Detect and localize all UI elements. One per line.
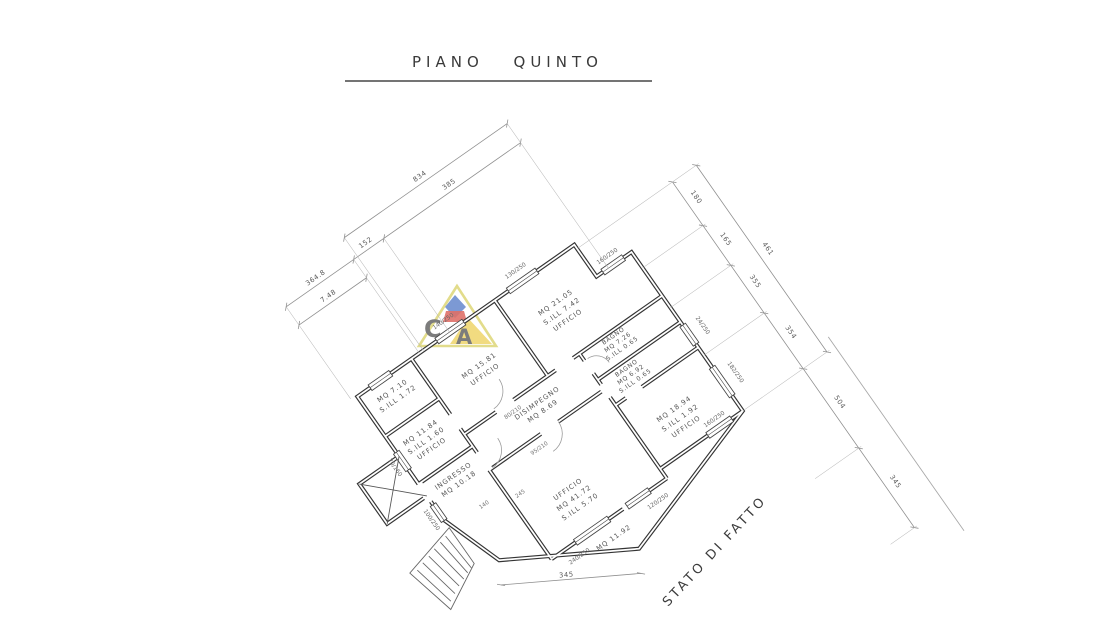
dim-461: 461 — [760, 241, 775, 258]
dim-385: 385 — [441, 177, 458, 192]
room-label-ufficio-grande: UFFICIO MQ 41.72 S.ILL 5.70 — [548, 474, 600, 523]
dim-345-terrace: 345 — [559, 570, 574, 579]
room-label-c-ufficio: MQ 15.81 UFFICIO — [460, 351, 504, 390]
dim-354: 354 — [783, 324, 798, 341]
dim-345: 345 — [888, 473, 903, 490]
dim-7-48: 7.48 — [319, 288, 338, 305]
room-label-bagno2: BAGNO MQ 6.92 S.ILL 0.65 — [609, 355, 653, 395]
plan-note-stato-di-fatto: STATO DI FATTO — [660, 493, 770, 610]
window-label-182-250: 182/250 — [726, 361, 745, 384]
door-openings — [393, 315, 695, 602]
page-title: PIANO QUINTO — [412, 53, 603, 71]
window-label-120-250: 120/250 — [647, 492, 670, 511]
door-label-95-210: 95/210 — [530, 441, 550, 457]
window-label-240-250: 240/250 — [568, 547, 591, 566]
dim-165: 165 — [718, 231, 733, 248]
dim-364-8: 364.8 — [304, 268, 327, 287]
window-label-24-250: 24/250 — [694, 316, 711, 336]
room-label-b-ufficio: MQ 11.84 S.ILL 1.60 UFFICIO — [401, 417, 452, 464]
room-label-d-ufficio: MQ 21.05 S.ILL 7.42 UFFICIO — [536, 287, 588, 336]
floorplan-canvas: PIANO QUINTO C A — [0, 0, 1112, 628]
room-label-ufficio-dx: MQ 18.94 S.ILL 1.92 UFFICIO — [654, 394, 706, 443]
dim-180: 180 — [689, 189, 704, 206]
scanned-floorplan-sheet: PIANO QUINTO C A — [0, 0, 1112, 628]
dim-140: 140 — [478, 500, 491, 511]
dim-152: 152 — [357, 235, 374, 250]
agency-watermark-logo: C A — [419, 286, 496, 349]
dim-245: 245 — [514, 489, 527, 500]
dim-504: 504 — [832, 394, 847, 411]
dim-834: 834 — [412, 169, 429, 184]
floor-plan: 834 364.8 152 385 7.48 461 180 165 355 3… — [224, 31, 968, 628]
dim-355: 355 — [748, 273, 763, 290]
